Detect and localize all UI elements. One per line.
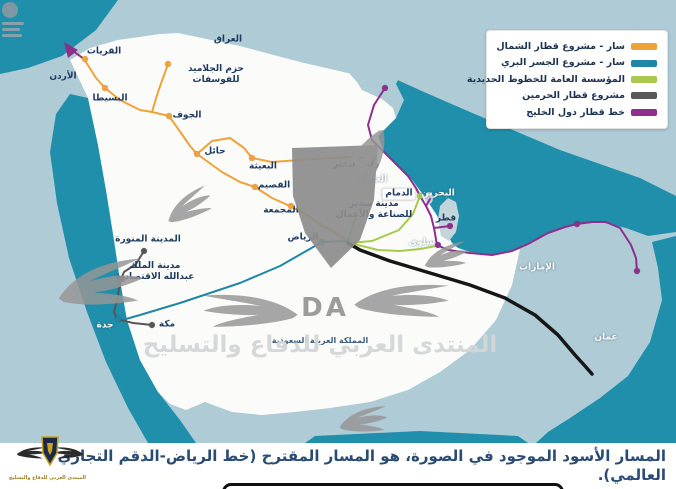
- legend-item: مشروع قطار الحرمين: [497, 91, 657, 101]
- legend-swatch-gcc: [631, 109, 657, 116]
- legend-swatch-sro: [631, 76, 657, 83]
- legend-label: سار - مشروع قطار الشمال: [496, 42, 625, 52]
- legend-swatch-haramain: [631, 92, 657, 99]
- legend-item: سار - مشروع قطار الشمال: [497, 42, 657, 52]
- watermark-logo-left: [0, 0, 28, 44]
- forum-logo-caption: المنتدى العربي للدفاع والتسليح: [14, 475, 86, 481]
- black-frame-fragment: [222, 483, 564, 489]
- legend-item: سار - مشروع الجسر البري: [497, 58, 657, 68]
- legend-label: سار - مشروع الجسر البري: [501, 58, 625, 68]
- legend-label: خط قطار دول الخليج: [526, 108, 625, 118]
- screenshot-root: العراقالأردنالقرياتحزم الجلاميدللفوسفاتا…: [0, 0, 676, 489]
- legend-label: مشروع قطار الحرمين: [522, 91, 625, 101]
- legend-swatch-nsr: [631, 43, 657, 50]
- legend-item: المؤسسة العامة للخطوط الحديدية: [497, 75, 657, 85]
- legend-box: سار - مشروع قطار الشمالسار - مشروع الجسر…: [486, 30, 668, 129]
- legend-swatch-landbridge: [631, 60, 657, 67]
- legend-item: خط قطار دول الخليج: [497, 108, 657, 118]
- legend-label: المؤسسة العامة للخطوط الحديدية: [467, 75, 625, 85]
- forum-shield-icon: [14, 435, 86, 471]
- watermark-logo-bottom-left: المنتدى العربي للدفاع والتسليح: [14, 435, 86, 489]
